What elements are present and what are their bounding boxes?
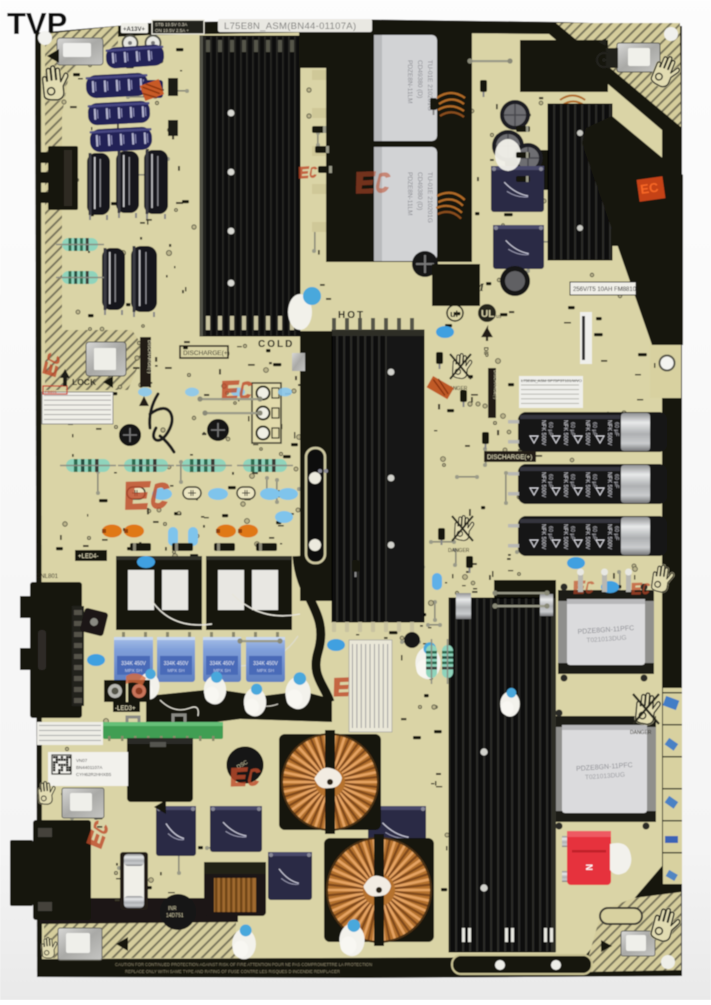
svg-text:60 µF: 60 µF <box>569 474 575 489</box>
svg-text:60 µF: 60 µF <box>591 474 597 489</box>
svg-text:NFK 500V: NFK 500V <box>540 472 546 498</box>
svg-text:60 µF: 60 µF <box>591 526 597 541</box>
svg-text:334K 450V: 334K 450V <box>253 661 278 667</box>
svg-text:DISCHARGE(+): DISCHARGE(+) <box>487 454 532 461</box>
svg-text:60 µF: 60 µF <box>613 474 619 489</box>
svg-text:NFK 500V: NFK 500V <box>606 472 612 498</box>
svg-text:256V/T5 10AH FM8810: 256V/T5 10AH FM8810 <box>573 287 637 293</box>
svg-text:+LED4-: +LED4- <box>78 554 99 560</box>
svg-text:-LED3+: -LED3+ <box>115 706 136 712</box>
svg-text:NFK 500V: NFK 500V <box>562 524 568 550</box>
svg-text:DANGER: DANGER <box>630 730 652 736</box>
svg-text:CNL801: CNL801 <box>36 574 59 580</box>
svg-text:NFK 500V: NFK 500V <box>584 524 590 550</box>
svg-text:334K 450V: 334K 450V <box>164 661 189 667</box>
svg-text:NFK 500V: NFK 500V <box>562 472 568 498</box>
svg-text:DIP: DIP <box>482 347 488 357</box>
svg-text:UL: UL <box>481 309 494 320</box>
svg-text:TU-01E 210201G: TU-01E 210201G <box>426 172 433 223</box>
svg-text:DISCHARGE(+): DISCHARGE(+) <box>183 350 230 357</box>
svg-text:us: us <box>496 314 502 320</box>
svg-text:PDZE8N-11LM: PDZE8N-11LM <box>406 172 413 216</box>
svg-text:60 µF: 60 µF <box>569 422 575 437</box>
svg-text:60 µF: 60 µF <box>613 422 619 437</box>
svg-text:60 µF: 60 µF <box>547 422 553 437</box>
svg-text:PDZE8N-11LM: PDZE8N-11LM <box>406 60 413 104</box>
svg-text:60 µF: 60 µF <box>547 474 553 489</box>
svg-text:60 µF: 60 µF <box>591 422 597 437</box>
svg-text:INR: INR <box>168 906 177 912</box>
svg-text:EC: EC <box>639 180 660 197</box>
svg-text:BN4401107A: BN4401107A <box>76 765 102 770</box>
svg-text:STB 19.5V 0.3A: STB 19.5V 0.3A <box>155 22 187 27</box>
svg-text:NFK 500V: NFK 500V <box>606 420 612 446</box>
svg-text:NFK 500V: NFK 500V <box>562 420 568 446</box>
svg-text:334K 450V: 334K 450V <box>121 661 146 667</box>
svg-text:ul: ul <box>450 309 458 319</box>
svg-text:L75E8N_ASM(BN44-01107A): L75E8N_ASM(BN44-01107A) <box>224 21 356 32</box>
svg-text:CAUTION FOR CONTINUED PROTECTI: CAUTION FOR CONTINUED PROTECTION AGAINST… <box>115 962 372 967</box>
svg-text:14D751: 14D751 <box>166 913 184 919</box>
svg-text:CD49380 (D): CD49380 (D) <box>416 172 423 210</box>
svg-text:NFK 500V: NFK 500V <box>584 420 590 446</box>
svg-text:FB801: FB801 <box>45 389 58 394</box>
svg-text:ON 19.5V 2.5A +: ON 19.5V 2.5A + <box>155 28 189 33</box>
svg-text:DANGER: DANGER <box>448 548 470 554</box>
svg-text:MPX SH: MPX SH <box>167 668 184 673</box>
svg-text:CD49380 (D): CD49380 (D) <box>416 60 423 98</box>
svg-text:REPLACE ONLY WITH SAME TYPE AN: REPLACE ONLY WITH SAME TYPE AND RATING O… <box>125 969 340 974</box>
svg-text:MPX SH: MPX SH <box>257 668 274 673</box>
svg-text:334K 450V: 334K 450V <box>210 661 235 667</box>
svg-text:60 µF: 60 µF <box>547 526 553 541</box>
svg-text:LOCK: LOCK <box>72 377 97 387</box>
svg-text:DISCHARGE(-): DISCHARGE(-) <box>493 370 498 400</box>
svg-text:+A13V+: +A13V+ <box>123 27 146 33</box>
svg-text:CYH62R2HHXB5: CYH62R2HHXB5 <box>76 772 112 777</box>
svg-text:DISCHARGE(-): DISCHARGE(-) <box>146 340 152 374</box>
svg-text:N: N <box>584 864 594 871</box>
svg-text:MPX SH: MPX SH <box>125 668 142 673</box>
svg-text:60 µF: 60 µF <box>569 526 575 541</box>
svg-text:NFK 500V: NFK 500V <box>584 472 590 498</box>
svg-text:L75E8N_ASM SP75P3T101/WVO: L75E8N_ASM SP75P3T101/WVO <box>521 378 582 383</box>
svg-text:60 µF: 60 µF <box>613 526 619 541</box>
svg-text:NFK 500V: NFK 500V <box>606 524 612 550</box>
svg-text:VN07: VN07 <box>76 758 88 763</box>
svg-text:NFK 500V: NFK 500V <box>540 524 546 550</box>
svg-text:COLD: COLD <box>258 339 294 350</box>
svg-text:NFK 500V: NFK 500V <box>540 420 546 446</box>
